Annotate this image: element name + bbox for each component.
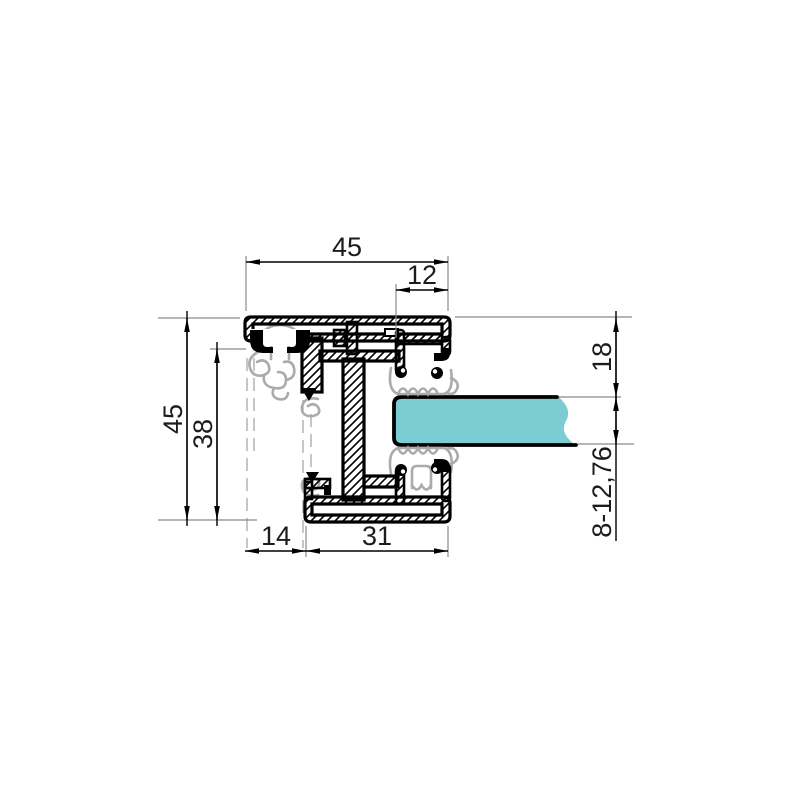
dim-bottom-width-label: 31 — [362, 521, 392, 551]
dimension-glass-thickness: 8-12,76 — [587, 397, 617, 538]
upper-bead-foot-left-notch — [401, 368, 405, 372]
dimension-bottom-offset: 14 — [245, 521, 306, 551]
lower-bead-foot-left-notch — [401, 469, 405, 473]
lower-bead-foot-left — [395, 464, 407, 476]
main-stem — [343, 359, 364, 500]
upper-bead-top-wall — [398, 334, 442, 344]
upper-bead-foot-right — [431, 367, 443, 379]
dimension-bottom-width: 31 — [306, 521, 448, 551]
dim-inner-height-label: 38 — [188, 419, 218, 449]
dim-bead-width-label: 12 — [407, 260, 437, 290]
drawing-canvas: 45 12 45 38 18 8-12,76 14 31 — [0, 0, 800, 800]
left-column — [302, 338, 322, 392]
glass-panel — [393, 396, 578, 447]
gasket-curl-4 — [273, 388, 288, 399]
lower-bead-foot-right-notch — [433, 467, 437, 471]
dim-top-to-glass-label: 18 — [587, 342, 617, 372]
dimension-top-width: 45 — [246, 232, 448, 262]
dim-top-width-label: 45 — [332, 232, 362, 262]
gasket-curl-1 — [249, 352, 269, 376]
lower-bead-foot-right — [431, 462, 443, 474]
bottom-chamber — [305, 497, 450, 522]
dimension-overall-height: 45 — [158, 311, 188, 526]
dimension-bead-width: 12 — [396, 260, 448, 290]
upper-bead-foot-right-notch — [433, 369, 437, 373]
aluminium-profile-section-drawing: 45 12 45 38 18 8-12,76 14 31 — [0, 0, 800, 800]
phantom-hook-upper — [302, 398, 319, 416]
dim-overall-height-label: 45 — [158, 404, 188, 434]
dim-bottom-offset-label: 14 — [261, 521, 291, 551]
upper-bead-foot-left — [395, 366, 407, 378]
dim-glass-thickness-label: 8-12,76 — [587, 446, 617, 538]
lower-web — [364, 476, 398, 487]
glass-fill — [393, 396, 578, 447]
dimension-inner-height: 38 — [188, 342, 218, 526]
bottom-hook-tab — [324, 485, 331, 495]
interior-rib — [334, 330, 345, 346]
stem-upper — [347, 322, 357, 354]
lower-channel-gasket-wave — [412, 485, 431, 490]
